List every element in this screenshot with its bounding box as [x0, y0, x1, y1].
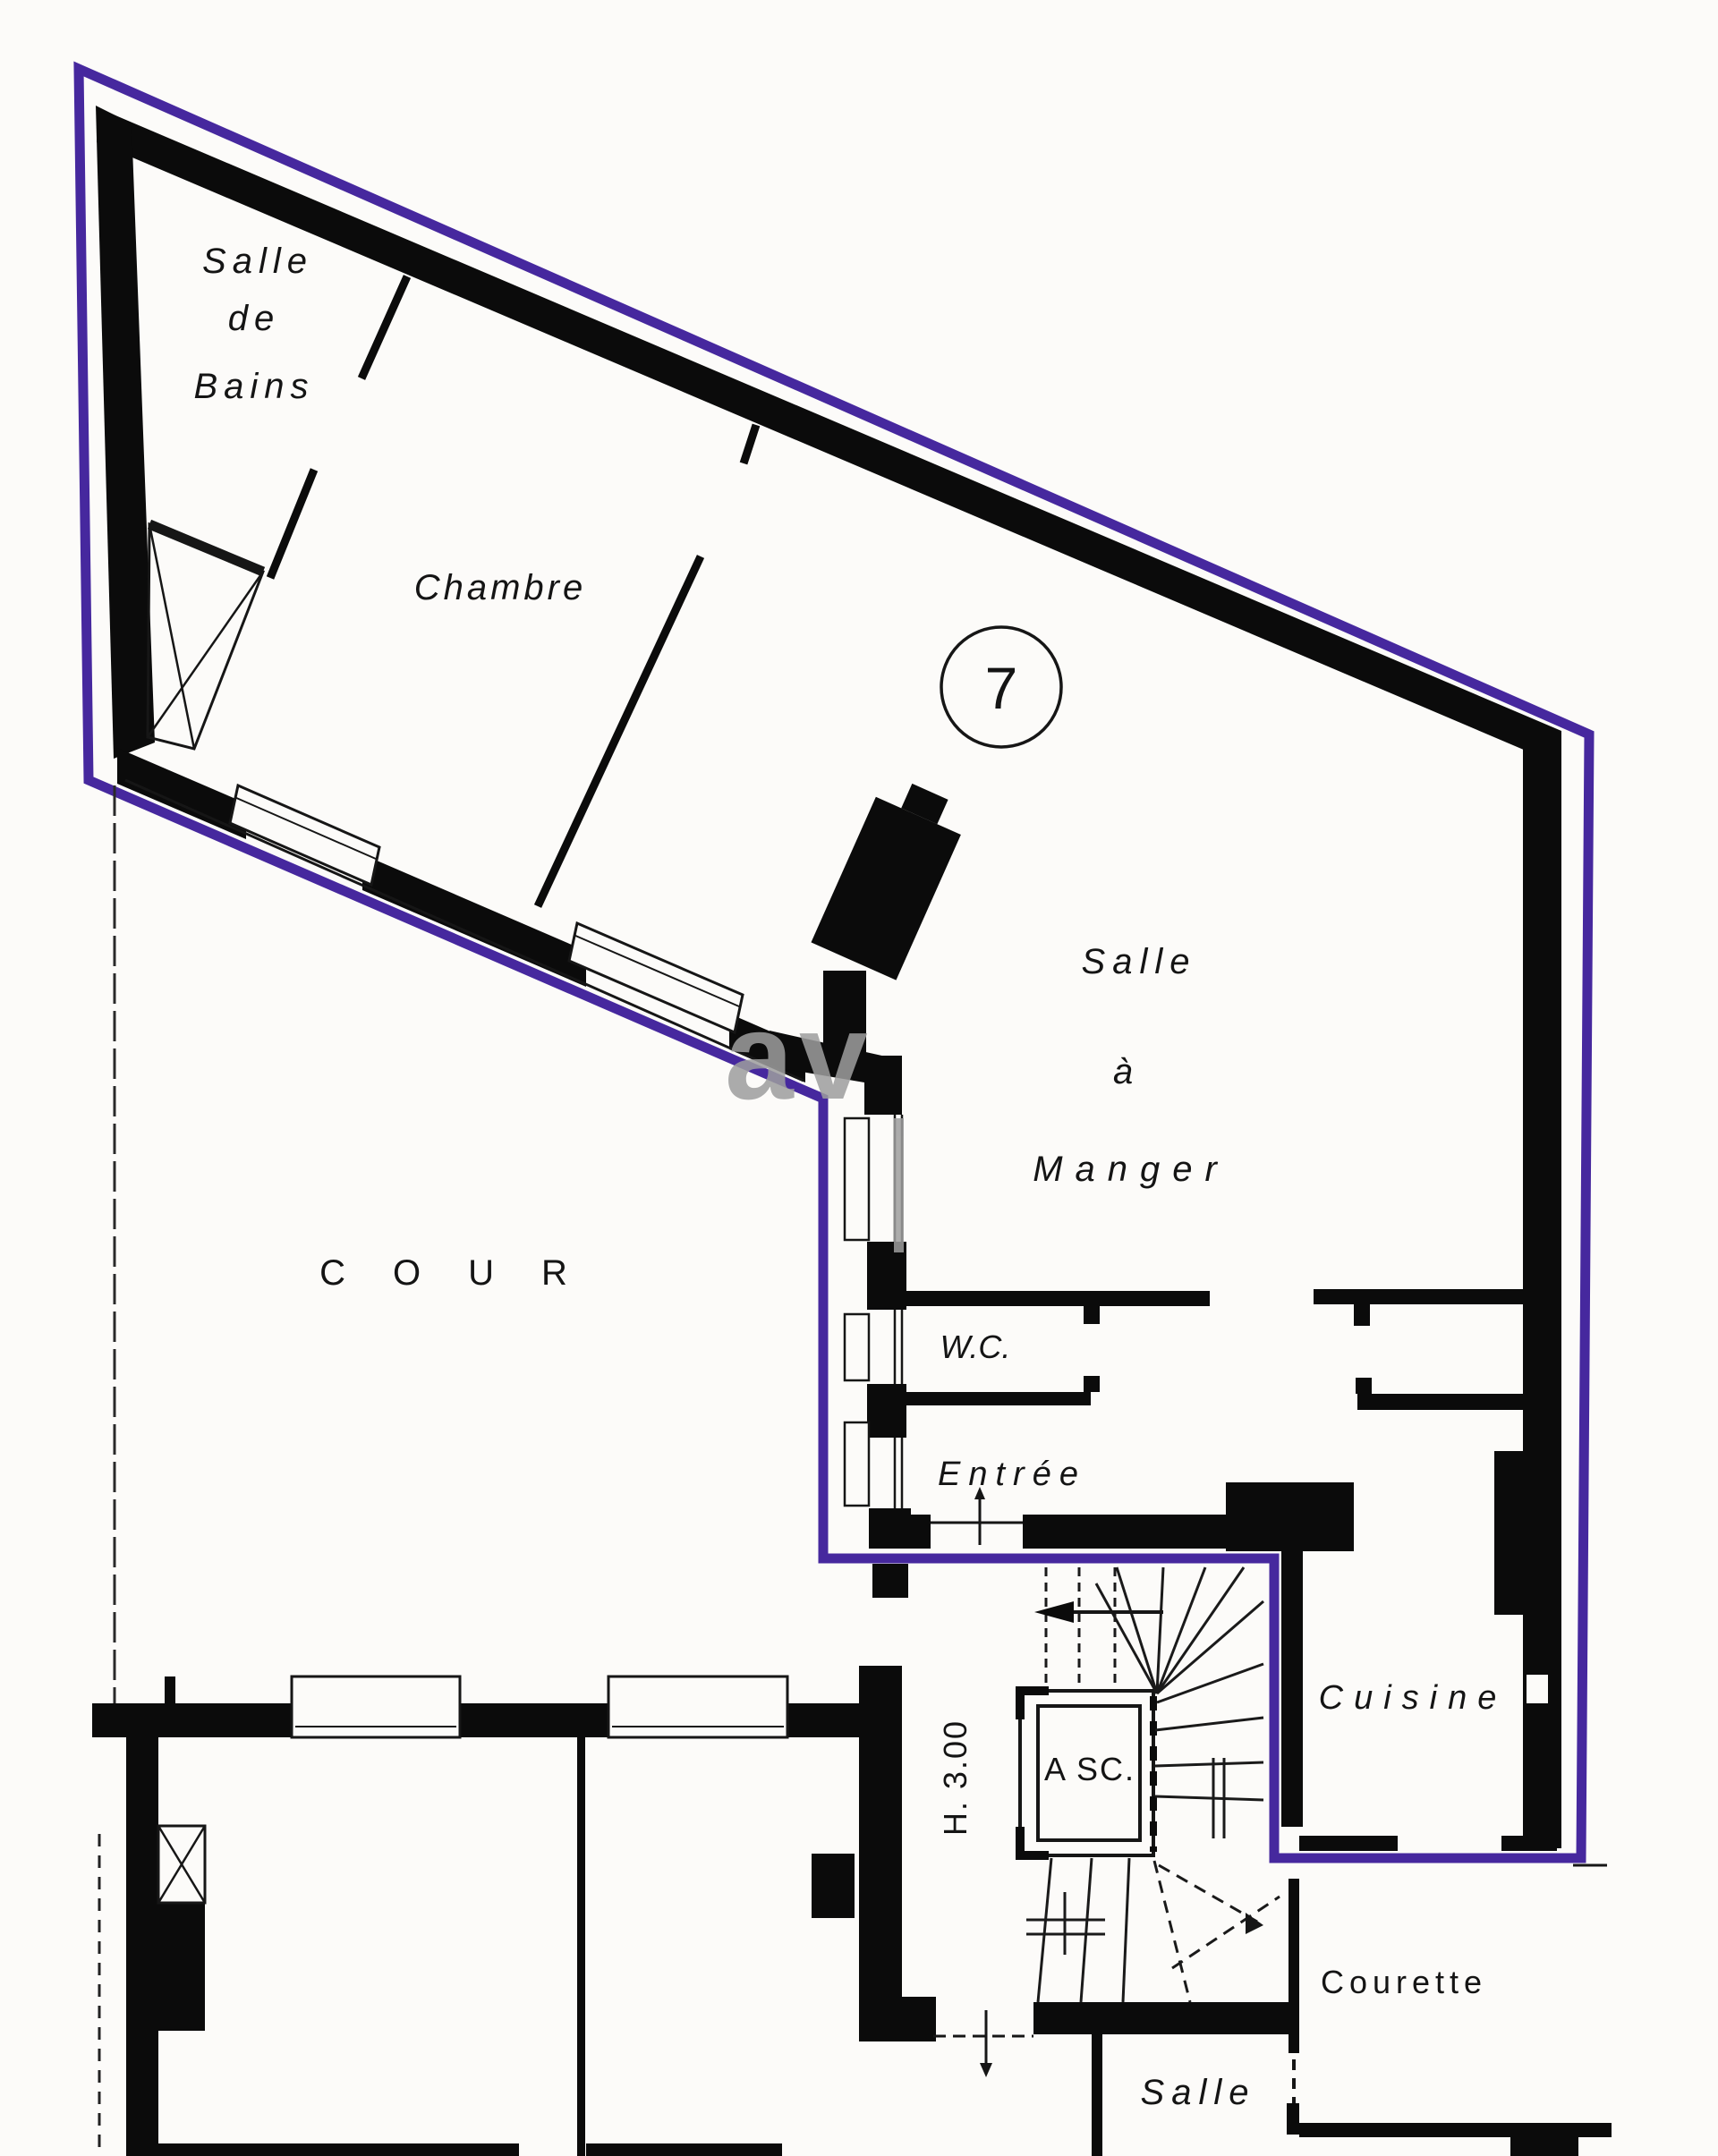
svg-text:H. 3.00: H. 3.00: [937, 1719, 974, 1836]
svg-text:Manger: Manger: [1033, 1150, 1229, 1189]
svg-text:Courette: Courette: [1321, 1964, 1487, 2000]
svg-text:W.C.: W.C.: [940, 1328, 1011, 1365]
svg-text:à: à: [1113, 1052, 1133, 1091]
svg-text:Cuisine: Cuisine: [1319, 1679, 1508, 1717]
svg-text:Salle: Salle: [202, 242, 313, 281]
svg-text:COUR: COUR: [319, 1253, 615, 1293]
svg-text:Salle: Salle: [1082, 942, 1197, 981]
svg-text:7: 7: [985, 655, 1018, 721]
svg-text:Chambre: Chambre: [414, 568, 587, 607]
svg-text:de: de: [228, 299, 281, 338]
svg-text:a: a: [725, 988, 795, 1125]
svg-text:Salle: Salle: [1141, 2073, 1256, 2112]
svg-text:v: v: [799, 988, 868, 1125]
svg-text:Entrée: Entrée: [938, 1456, 1086, 1493]
svg-text:A SC.: A SC.: [1044, 1751, 1135, 1787]
svg-text:Bains: Bains: [193, 367, 314, 406]
